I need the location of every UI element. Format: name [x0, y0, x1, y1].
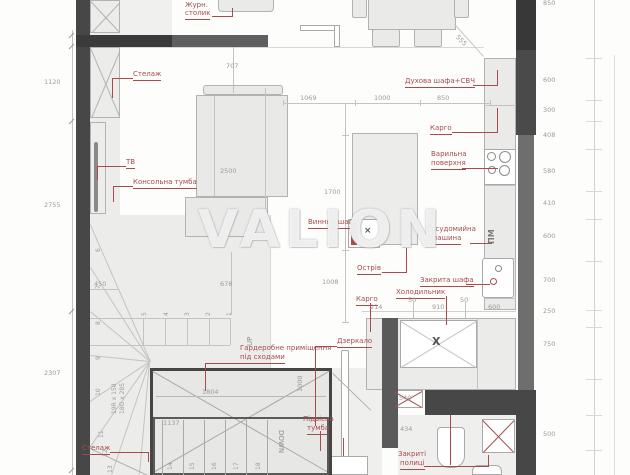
- dim-right-580: 580: [543, 168, 555, 175]
- dim-678: 678: [220, 281, 232, 288]
- dining-chair-left: [372, 29, 400, 47]
- label-shelf-top: Стелаж: [133, 70, 161, 81]
- leader-cargo-upper-h: [452, 132, 497, 133]
- valion-watermark: VALION: [198, 200, 448, 262]
- counter-divider-1: [484, 105, 516, 106]
- dim-1000: 1000: [374, 95, 391, 102]
- stair-tread-5: [230, 318, 231, 345]
- stair-tread-2: [165, 318, 166, 345]
- dim-right-700: 700: [543, 277, 555, 284]
- dim-ext: [586, 191, 602, 192]
- dim-tick-h: [342, 322, 349, 323]
- storage-x-letter: X: [432, 335, 440, 348]
- label-mirror: Дзеркало: [337, 337, 372, 348]
- dim-ext: [586, 379, 602, 380]
- label-console: Консольна тумба: [133, 178, 197, 189]
- dim-right-600b: 600: [543, 233, 555, 240]
- wall-right-body: [518, 135, 534, 390]
- dining-table: [368, 0, 456, 30]
- dim-left-1120: 1120: [44, 79, 61, 86]
- wall-top-light: [172, 35, 268, 47]
- dim-1008: 1008: [322, 279, 339, 286]
- heater-leader: [450, 415, 451, 465]
- step-number: 6: [96, 248, 102, 252]
- label-hob-2: поверхня: [431, 159, 466, 170]
- stair-tread-4: [209, 318, 210, 345]
- leader-oven-v: [497, 70, 498, 86]
- pilaster-hatch-top: [90, 0, 120, 33]
- label-shelf-bottom: Стелаж: [82, 444, 110, 455]
- dim-left-2755: 2755: [44, 202, 61, 209]
- counter-divider-3: [484, 185, 516, 186]
- leader-tv-h: [97, 166, 126, 167]
- dim-214: 214: [370, 304, 382, 311]
- dim-line-right: [594, 0, 595, 475]
- step-number: 11: [99, 430, 105, 438]
- label-closed-shelves-1: Закриті: [398, 450, 426, 459]
- dim-ext: [586, 121, 602, 122]
- label-hanging-2: тумба: [307, 424, 329, 435]
- sofa-armrest: [203, 85, 283, 95]
- stairs-down-label: DOWN: [277, 430, 284, 453]
- dim-tick-v: [420, 100, 421, 106]
- leader-island-h: [382, 272, 407, 273]
- hanging-vanity: [330, 456, 368, 475]
- leader-coffee-h: [212, 16, 232, 17]
- floor-plan: × ПМ X: [0, 0, 630, 475]
- wall-right-mid: [516, 50, 536, 135]
- leader-tv-v: [97, 166, 98, 180]
- sink: [482, 258, 514, 298]
- label-wardrobe-1: Гардеробне приміщення: [240, 344, 331, 353]
- stairs-riser-spec: 19R x 158: [112, 383, 118, 414]
- dim-right-500: 500: [543, 431, 555, 438]
- wall-t-partition: [382, 318, 398, 448]
- dim-tick-v: [283, 100, 284, 106]
- label-closed-shelves-2: полиці: [400, 459, 425, 470]
- leader-mirror-v: [315, 346, 316, 426]
- wall-right-bottom: [516, 390, 536, 475]
- label-coffee-table-2: столик: [185, 9, 210, 20]
- dim-line-1804: [156, 396, 326, 397]
- wall-bath-top: [425, 390, 518, 415]
- dim-ext: [586, 149, 602, 150]
- step-number: 16: [212, 462, 218, 470]
- dining-chair-side-left: [352, 0, 367, 18]
- dim-line-right-outer: [614, 55, 615, 475]
- step-number: 2: [206, 312, 212, 316]
- dim-left-2307: 2307: [44, 370, 61, 377]
- hob-burner-4: [499, 165, 510, 176]
- step-number: 1: [227, 312, 233, 316]
- leader-shelves-h: [424, 466, 488, 467]
- step-number: 3: [185, 312, 191, 316]
- dining-chair-side-right: [454, 0, 469, 18]
- label-hanging-1: Підвісна: [303, 415, 334, 424]
- step-number: 9: [96, 356, 102, 360]
- leader-shelf-bottom-v: [148, 452, 149, 462]
- leader-shelftop-h: [112, 78, 133, 79]
- stairs-going-spec: 18G x 285: [120, 383, 126, 414]
- dim-line-counter: [362, 311, 516, 312]
- dim-50a: 50: [408, 297, 416, 304]
- leader-shelves-v: [488, 455, 489, 467]
- lower-step-5: [246, 420, 247, 475]
- leader-wardrobe-v: [205, 363, 206, 391]
- dim-50b: 50: [460, 297, 468, 304]
- dim-right-250: 250: [543, 308, 555, 315]
- water-heater: [437, 427, 465, 468]
- dishwasher-mark: ПМ: [488, 229, 496, 244]
- dim-ext: [586, 58, 602, 59]
- step-number: 17: [234, 462, 240, 470]
- dim-1069: 1069: [300, 95, 317, 102]
- label-hob-1: Варильна: [431, 150, 467, 159]
- stair-tread-1: [143, 318, 144, 345]
- dim-ext: [586, 450, 602, 451]
- label-tv: ТВ: [126, 158, 135, 169]
- leader-shelftop-v: [112, 78, 113, 98]
- hob-burner-2: [499, 151, 511, 163]
- label-wardrobe-2: під сходами: [240, 353, 285, 364]
- dim-right-600a: 600: [543, 77, 555, 84]
- dim-450: 450: [94, 281, 106, 288]
- leader-oven-h: [473, 85, 497, 86]
- dim-right-850: 850: [543, 0, 555, 7]
- step-number: 5: [142, 312, 148, 316]
- step-number: 13: [108, 465, 114, 473]
- stair-bottom-line: [90, 345, 230, 346]
- dim-line-top: [283, 103, 490, 104]
- dim-850: 850: [437, 95, 449, 102]
- lower-step-2: [183, 420, 184, 475]
- dim-right-408: 408: [543, 132, 555, 139]
- dim-tick-v: [490, 100, 491, 106]
- dim-right-300: 300: [543, 107, 555, 114]
- label-fridge: Холодильник: [396, 288, 445, 299]
- leader-console-v: [113, 186, 114, 202]
- dim-ext: [586, 415, 602, 416]
- dim-ext: [586, 219, 602, 220]
- dining-chair-right: [414, 29, 442, 47]
- dim-1000-v: 1000: [297, 375, 304, 392]
- railing-corner-v: [334, 25, 340, 47]
- stair-tread-3: [187, 318, 188, 345]
- dim-tick-v: [355, 100, 356, 106]
- dim-910: 910: [432, 304, 444, 311]
- lower-step-6: [267, 420, 268, 475]
- dim-ext: [586, 327, 602, 328]
- vanity-leader: [343, 438, 344, 456]
- dim-sofa-2500: 2500: [220, 168, 237, 175]
- hob-burner-1: [487, 152, 496, 161]
- dim-tick-v: [413, 302, 414, 318]
- dim-right-750: 750: [543, 341, 555, 348]
- leader-hob-h: [462, 168, 498, 169]
- step-number: 8: [96, 321, 102, 325]
- lower-step-1: [162, 420, 163, 475]
- leader-fridge-v: [446, 296, 447, 325]
- dim-600: 600: [488, 304, 500, 311]
- dim-island-1700: 1700: [324, 189, 341, 196]
- dim-right-410: 410: [543, 200, 555, 207]
- cabinet-knob: [490, 278, 497, 285]
- label-oven: Духова шафа+СВЧ: [405, 77, 475, 88]
- floor-terrace: [120, 0, 172, 35]
- dim-tick-h: [342, 135, 349, 136]
- leader-coffee-v: [232, 8, 233, 17]
- coffee-table: [218, 0, 274, 12]
- pilaster-hatch-bottom: [90, 47, 120, 118]
- leader-shelf-bottom-h: [110, 452, 148, 453]
- label-cargo-upper: Карго: [430, 124, 452, 135]
- wall-top-dark: [76, 35, 172, 47]
- console-cabinet-shape: [90, 122, 106, 214]
- leader-cargo-upper-v: [497, 108, 498, 133]
- dim-tick-v: [465, 302, 466, 318]
- label-island: Острів: [357, 264, 381, 275]
- dim-ext: [586, 261, 602, 262]
- label-closed-cabinet: Закрита шафа: [420, 276, 474, 287]
- dim-434: 434: [400, 426, 412, 433]
- step-number: 14: [168, 462, 174, 470]
- dim-540: 540: [399, 395, 411, 402]
- dim-1804: 1804: [202, 389, 219, 396]
- counter-divider-5: [484, 298, 516, 299]
- step-number: 18: [256, 462, 262, 470]
- step-number: 10: [96, 388, 102, 396]
- leader-console-h: [113, 186, 133, 187]
- dim-707: 707: [226, 63, 238, 70]
- lower-step-4: [225, 420, 226, 475]
- wall-left: [76, 0, 90, 475]
- step-number: 4: [164, 312, 170, 316]
- wall-face-line: [89, 47, 484, 48]
- sofa-back-line: [214, 96, 215, 196]
- dim-ext: [586, 310, 602, 311]
- sink-tap: [495, 265, 502, 272]
- wall-right-top: [516, 0, 536, 50]
- lower-step-3: [204, 420, 205, 475]
- dim-ext: [586, 100, 602, 101]
- step-number: 15: [190, 462, 196, 470]
- dim-1137: 1137: [163, 420, 180, 427]
- dim-line-left: [72, 30, 73, 475]
- leader-wardrobe-h: [205, 363, 240, 364]
- sofa-body: [196, 95, 288, 197]
- row-divider: [477, 318, 478, 390]
